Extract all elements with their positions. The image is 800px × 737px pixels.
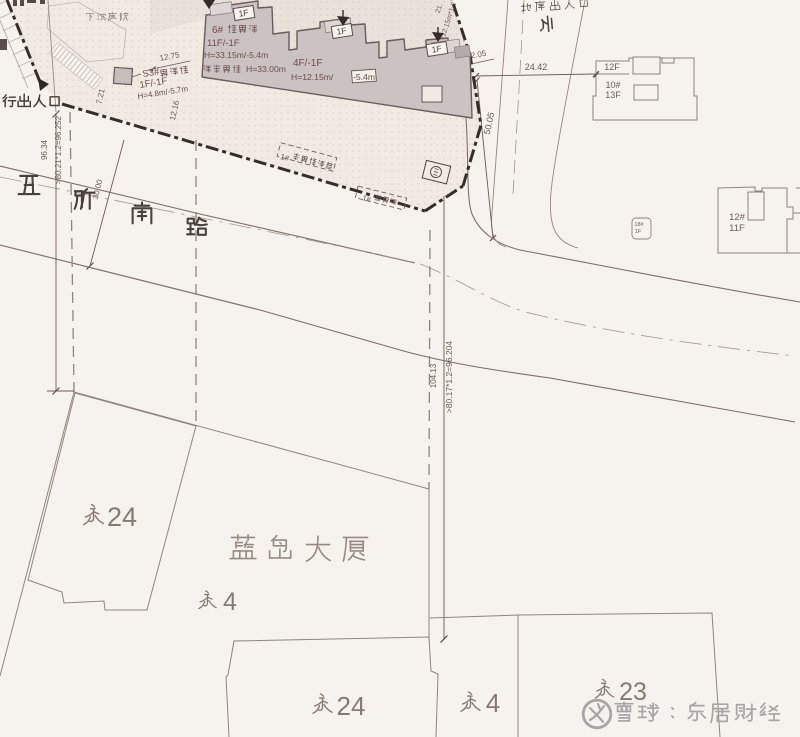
svg-text:H=33.00m: H=33.00m [246, 64, 286, 74]
svg-text:4: 4 [486, 688, 500, 718]
svg-text:12#: 12# [729, 212, 746, 223]
svg-text:24: 24 [337, 691, 366, 721]
svg-text:12F: 12F [604, 62, 620, 72]
svg-text:13F: 13F [605, 90, 621, 100]
svg-text:11F: 11F [729, 223, 745, 234]
svg-text:4F/-1F: 4F/-1F [293, 58, 322, 69]
svg-text:11F/-1F: 11F/-1F [207, 38, 240, 49]
svg-text:>80.21*1.2=96.252: >80.21*1.2=96.252 [54, 115, 63, 184]
svg-text:H=12.15m/: H=12.15m/ [291, 72, 334, 82]
svg-text:>80.17*1.2=96.204: >80.17*1.2=96.204 [444, 341, 454, 414]
svg-text:24.42: 24.42 [525, 62, 548, 72]
svg-text:1F: 1F [238, 7, 249, 18]
svg-text:1F: 1F [336, 25, 347, 36]
svg-text:4: 4 [223, 588, 237, 616]
svg-text:10#: 10# [605, 80, 620, 90]
svg-text:-5.4m: -5.4m [353, 72, 375, 82]
svg-text:H=33.15m/-5.4m: H=33.15m/-5.4m [204, 50, 268, 60]
svg-text:6#: 6# [212, 25, 224, 36]
svg-text:96.34: 96.34 [40, 139, 49, 160]
svg-text:1F: 1F [431, 43, 442, 54]
svg-text:1F: 1F [635, 229, 642, 235]
svg-text:18#: 18# [634, 222, 644, 228]
svg-text:104.13: 104.13 [429, 363, 438, 388]
svg-text:24: 24 [107, 502, 137, 532]
